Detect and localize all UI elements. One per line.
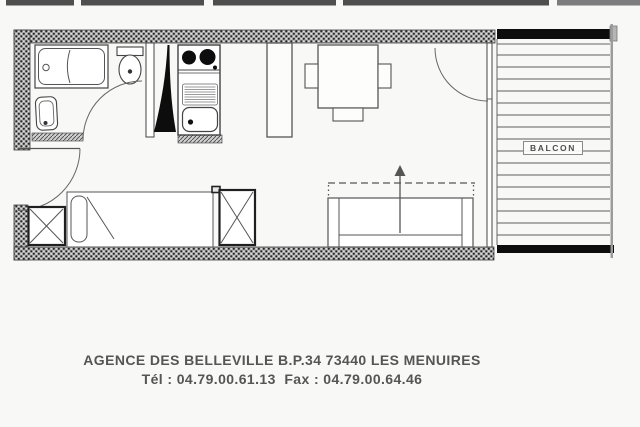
pillow (71, 196, 87, 242)
bathroom-sill (32, 133, 83, 141)
left-wall-upper (14, 30, 30, 150)
sofa-bed (328, 165, 475, 247)
kitchen-sink (183, 108, 218, 132)
chair-bottom (333, 108, 363, 121)
chair-left (305, 64, 318, 88)
single-bed (67, 192, 213, 247)
kitchen-sill (178, 135, 222, 143)
scan-edge-band (6, 0, 640, 6)
balcony-railing-bottom (497, 245, 614, 253)
washbasin (35, 96, 58, 130)
dining-set (305, 45, 391, 121)
bathroom (35, 45, 143, 140)
balcony-label: BALCON (523, 141, 583, 155)
agency-address-line: AGENCE DES BELLEVILLE B.P.34 73440 LES M… (0, 351, 564, 370)
drainboard (183, 84, 218, 105)
floor-plan-drawing (0, 0, 640, 345)
balcony-railing-top (497, 29, 610, 39)
bathroom-door-swing-arc (83, 81, 142, 140)
wardrobe-right (220, 190, 256, 245)
closet-counter (267, 43, 292, 137)
wardrobe-left (29, 207, 66, 245)
sleeping-area (29, 187, 256, 248)
top-wall (14, 30, 495, 43)
chair-right (378, 64, 391, 88)
agency-phone-fax-line: Tél : 04.79.00.61.13 Fax : 04.79.00.64.4… (0, 370, 564, 389)
scanned-floor-plan-page: BALCON AGENCE DES BELLEVILLE B.P.34 7344… (0, 0, 640, 427)
balcony-door-swing-arc (435, 48, 488, 101)
dining-table (318, 45, 378, 108)
agency-footer: AGENCE DES BELLEVILLE B.P.34 73440 LES M… (0, 351, 564, 389)
kitchen-wedge-wall (154, 45, 176, 132)
toilet (117, 47, 143, 84)
kitchenette-unit (178, 45, 220, 135)
balcony-glazed-wall (487, 43, 492, 247)
bottom-wall (14, 247, 494, 260)
bathtub (35, 45, 108, 88)
bathroom-partition-wall (146, 43, 154, 137)
balcony-right-edge (611, 24, 614, 258)
